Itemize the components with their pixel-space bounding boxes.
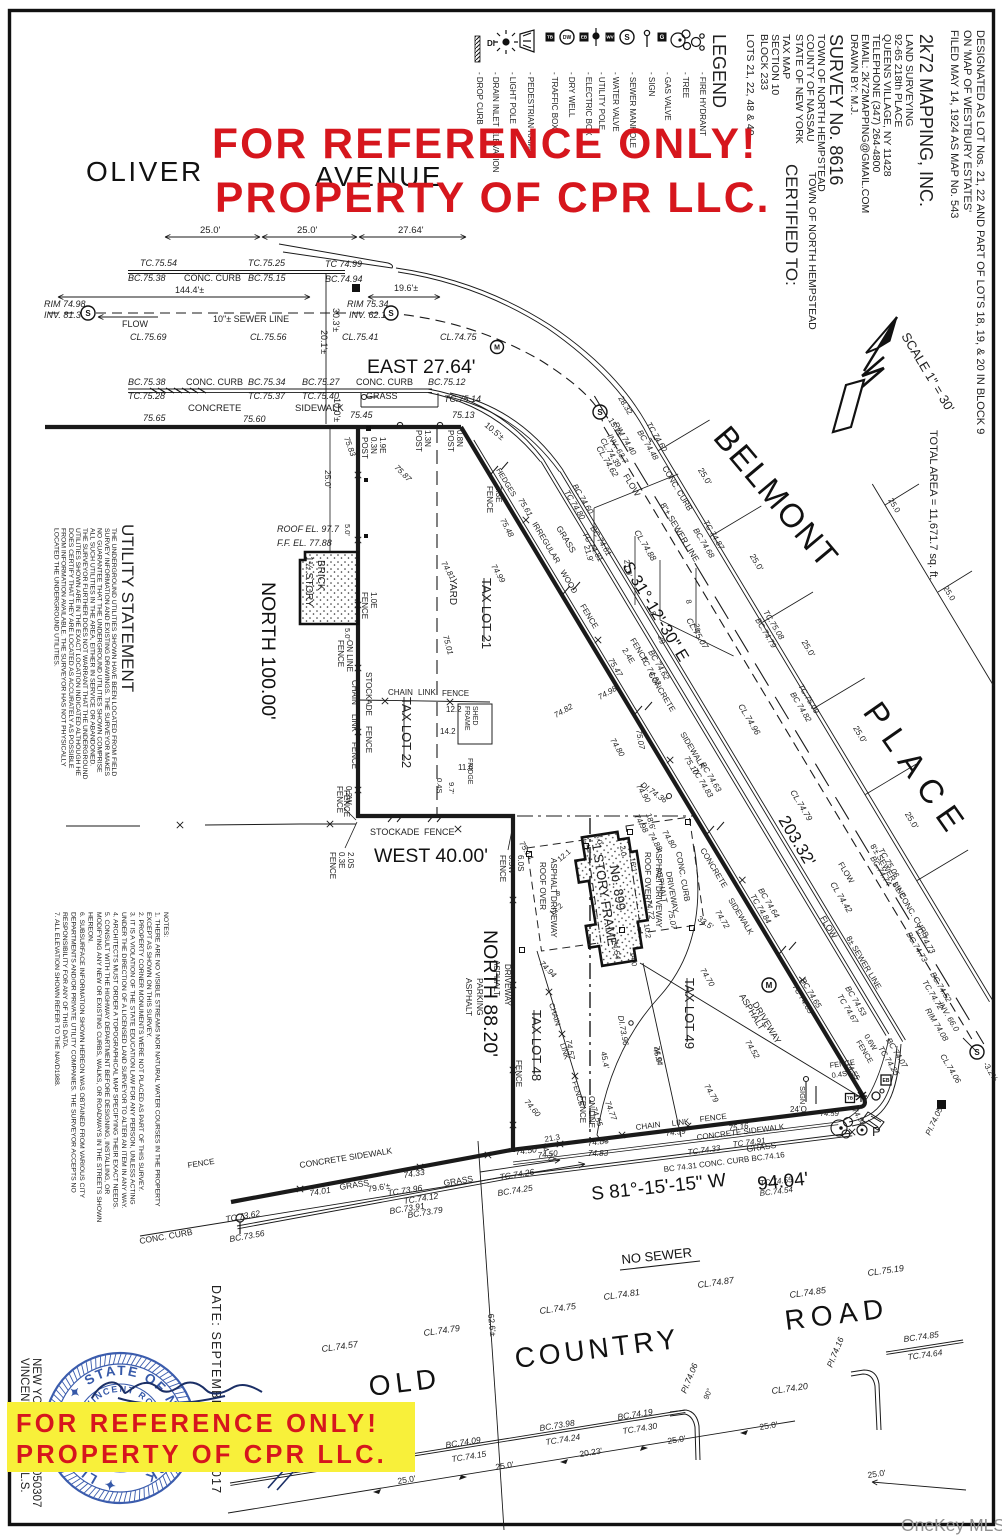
svg-text:UTILITY STATEMENT: UTILITY STATEMENT — [118, 524, 137, 692]
svg-text:LINK: LINK — [350, 714, 359, 732]
svg-text:TB: TB — [547, 35, 554, 40]
svg-text:F.F. EL. 77.88: F.F. EL. 77.88 — [277, 538, 332, 548]
svg-text:NO GUARANTEE THAT THE UNDERGR: NO GUARANTEE THAT THE UNDERGROUND UTILIT… — [96, 528, 103, 773]
svg-text:CONCRETE: CONCRETE — [188, 403, 241, 414]
svg-text:FRAME: FRAME — [463, 706, 470, 731]
svg-text:BC.75.38: BC.75.38 — [128, 273, 166, 283]
svg-text:75.13: 75.13 — [452, 410, 475, 420]
svg-text:4. ARCHITECTS MUST ORDER A TOP: 4. ARCHITECTS MUST ORDER A TOPOGRAPHICAL… — [112, 912, 119, 1209]
svg-text:PARKING: PARKING — [475, 978, 485, 1016]
svg-text:TOWN OF NORTH HEMPSTEAD: TOWN OF NORTH HEMPSTEAD — [806, 172, 818, 330]
svg-text:DRAWN BY: M.J.: DRAWN BY: M.J. — [848, 34, 860, 115]
svg-text:INV. 62.1: INV. 62.1 — [349, 310, 386, 320]
svg-text:27.64': 27.64' — [398, 225, 424, 236]
svg-text:BLOCK 233: BLOCK 233 — [758, 34, 770, 90]
svg-text:7. ALL ELEVATION SHOWN REFER T: 7. ALL ELEVATION SHOWN REFER TO THE NAVD… — [53, 912, 60, 1087]
svg-text:S: S — [624, 33, 630, 42]
svg-text:WV: WV — [606, 35, 613, 40]
svg-text:WEST 40.00': WEST 40.00' — [374, 845, 488, 867]
svg-text:2.3E: 2.3E — [494, 486, 503, 502]
svg-text:BC.75.15: BC.75.15 — [248, 273, 287, 283]
svg-text:ASPHALT DRIVEWAY: ASPHALT DRIVEWAY — [549, 858, 558, 938]
svg-text:G: G — [660, 35, 665, 41]
svg-text:75.65: 75.65 — [143, 413, 167, 423]
svg-text:1.3N: 1.3N — [423, 430, 432, 447]
svg-text:ON 'MAP OF WESTBURY ESTATES': ON 'MAP OF WESTBURY ESTATES' — [961, 30, 973, 212]
svg-text:DI: DI — [487, 39, 495, 48]
svg-text:STOCKADE: STOCKADE — [364, 672, 373, 716]
svg-text:SHED: SHED — [471, 706, 478, 725]
svg-text:0.5W: 0.5W — [507, 855, 516, 874]
svg-text:EAST 27.64': EAST 27.64' — [367, 356, 476, 378]
svg-text:THE SURVEYOR FURTHER DOES NOT: THE SURVEYOR FURTHER DOES NOT WARRANT TH… — [81, 528, 88, 779]
svg-text:6. SUBSURFACE INFORMATION SHOW: 6. SUBSURFACE INFORMATION SHOWN HEREON W… — [78, 912, 85, 1198]
svg-text:FENCE: FENCE — [578, 1096, 587, 1123]
svg-text:8.0: 8.0 — [594, 833, 604, 845]
svg-text:FENCE: FENCE — [514, 1060, 523, 1087]
svg-text:FENCE: FENCE — [364, 726, 373, 753]
svg-text:TC 74.99: TC 74.99 — [325, 259, 362, 269]
svg-text:UNDER THE DIRECTION OF A LICEN: UNDER THE DIRECTION OF A LICENSED LAND S… — [120, 912, 127, 1208]
svg-text:0.8N: 0.8N — [455, 430, 464, 447]
svg-text:FROM INFORMATION AVAILABLE. T: FROM INFORMATION AVAILABLE. THE SURVEYOR… — [60, 528, 67, 767]
svg-text:0.4S: 0.4S — [435, 778, 444, 793]
svg-text:LEGEND: LEGEND — [709, 34, 729, 108]
svg-text:BC.74.94: BC.74.94 — [325, 274, 363, 284]
svg-text:FENCE: FENCE — [336, 640, 345, 667]
svg-text:EXCEPT AS SHOWN ON THIS SURVEY: EXCEPT AS SHOWN ON THIS SURVEY. — [145, 912, 152, 1038]
svg-text:OneKey MLS: OneKey MLS — [901, 1515, 1002, 1535]
svg-text:THE UNDERGROUND UTILITIES SHOW: THE UNDERGROUND UTILITIES SHOWN HAVE BEE… — [110, 528, 117, 776]
svg-text:144.4'±: 144.4'± — [175, 285, 204, 295]
svg-text:M: M — [766, 981, 773, 990]
svg-text:SURVEY No. 8616: SURVEY No. 8616 — [826, 34, 846, 185]
svg-text:STOCKADE: STOCKADE — [370, 827, 419, 837]
svg-text:FENCE: FENCE — [498, 855, 507, 882]
svg-text:0.3E: 0.3E — [337, 852, 346, 868]
svg-text:0.3N: 0.3N — [369, 437, 378, 454]
svg-text:30.3'±: 30.3'± — [331, 308, 341, 332]
svg-text:25.0': 25.0' — [200, 225, 220, 236]
svg-text:FOR REFERENCE ONLY!: FOR REFERENCE ONLY! — [212, 121, 758, 168]
svg-text:- GAS VALVE: - GAS VALVE — [663, 72, 672, 121]
svg-text:SIGN: SIGN — [798, 1086, 807, 1104]
svg-text:FENCE: FENCE — [424, 827, 455, 837]
svg-text:ALL SUCH UTILITIES IN THE AREA: ALL SUCH UTILITIES IN THE AREA, EITHER I… — [88, 528, 95, 766]
svg-text:FENCE: FENCE — [342, 790, 351, 817]
svg-text:CHAIN: CHAIN — [350, 680, 359, 705]
svg-text:TC.75.37: TC.75.37 — [248, 391, 286, 401]
svg-text:5. CONSULT WITH THE HIGHWAY DE: 5. CONSULT WITH THE HIGHWAY DEPARTMENT B… — [103, 912, 110, 1194]
svg-text:TC.75.25: TC.75.25 — [248, 258, 286, 268]
svg-text:RIM 74.98: RIM 74.98 — [44, 299, 86, 309]
svg-text:- DRY WELL: - DRY WELL — [567, 72, 576, 118]
svg-text:YARD: YARD — [447, 578, 458, 605]
svg-text:DOES CERTIFY THAT THEY ARE LOC: DOES CERTIFY THAT THEY ARE LOCATED AS AC… — [67, 528, 74, 769]
svg-text:DW: DW — [563, 35, 572, 41]
svg-text:GRASS: GRASS — [366, 391, 398, 401]
svg-text:ASPHALT: ASPHALT — [492, 960, 501, 996]
svg-text:TB: TB — [847, 1096, 854, 1101]
svg-text:1½ STORY: 1½ STORY — [303, 556, 314, 607]
svg-text:CHAIN: CHAIN — [388, 688, 413, 697]
svg-text:M: M — [494, 345, 500, 352]
svg-text:TAX LOT 48: TAX LOT 48 — [529, 1010, 544, 1081]
svg-text:FILED MAY 14, 1924 AS MAP No.: FILED MAY 14, 1924 AS MAP No. 543 — [948, 30, 960, 218]
svg-text:ON LINE: ON LINE — [345, 640, 354, 672]
svg-text:FENCE: FENCE — [485, 486, 494, 513]
svg-text:BC.75.12: BC.75.12 — [428, 377, 466, 387]
svg-text:1.0E: 1.0E — [369, 592, 378, 608]
svg-text:20.1'±: 20.1'± — [319, 330, 329, 354]
svg-text:BC.75.34: BC.75.34 — [248, 377, 286, 387]
svg-text:12.2: 12.2 — [446, 705, 462, 714]
svg-text:TOTAL AREA = 11,671.7 sq. ft.: TOTAL AREA = 11,671.7 sq. ft. — [927, 430, 939, 580]
svg-text:SURVEY INFORMATION AND EXISTIN: SURVEY INFORMATION AND EXISTING DRAWINGS… — [103, 528, 110, 776]
svg-text:S: S — [85, 309, 91, 318]
svg-text:1.9E: 1.9E — [378, 437, 387, 453]
svg-text:FRIDGE: FRIDGE — [466, 758, 473, 785]
svg-text:EB: EB — [581, 35, 588, 40]
svg-text:CONC. CURB: CONC. CURB — [186, 377, 243, 387]
svg-text:TC.75.54: TC.75.54 — [140, 258, 177, 268]
svg-text:DESIGNATED AS LOT Nos. 21, 22: DESIGNATED AS LOT Nos. 21, 22 AND PART O… — [974, 30, 986, 434]
svg-text:14.2: 14.2 — [440, 727, 456, 736]
svg-text:BC.75.27: BC.75.27 — [302, 377, 341, 387]
svg-text:HEREON.: HEREON. — [86, 912, 93, 943]
svg-text:CL.74.75: CL.74.75 — [440, 332, 478, 342]
svg-text:CL.75.41: CL.75.41 — [342, 332, 379, 342]
svg-text:24ʼO: 24ʼO — [790, 1105, 807, 1114]
svg-text:6.0S: 6.0S — [516, 855, 525, 871]
svg-text:- TREE: - TREE — [681, 72, 690, 98]
svg-text:RESPONSIBILITY FOR ANY OF THIS: RESPONSIBILITY FOR ANY OF THIS DATA. — [61, 912, 68, 1049]
svg-text:5.0': 5.0' — [343, 628, 352, 640]
svg-text:DEPARTMENTS AND/OR PRIVATE UTI: DEPARTMENTS AND/OR PRIVATE UTILITY COMPA… — [70, 912, 77, 1193]
svg-text:9.7': 9.7' — [447, 782, 456, 794]
svg-text:POST: POST — [414, 430, 423, 452]
svg-text:74.59: 74.59 — [820, 1109, 840, 1118]
svg-text:NORTH 100.00': NORTH 100.00' — [257, 582, 279, 720]
svg-text:TAX LOT 49: TAX LOT 49 — [682, 978, 697, 1049]
svg-text:CL.75.56: CL.75.56 — [250, 332, 287, 342]
svg-text:2. PROPERTY CORNER MONUMENTS W: 2. PROPERTY CORNER MONUMENTS WERE NOT PL… — [137, 912, 144, 1191]
svg-text:ROOF EL. 97.7: ROOF EL. 97.7 — [277, 524, 340, 534]
svg-text:OLIVER: OLIVER — [86, 156, 204, 187]
svg-text:ROOF OVER: ROOF OVER — [538, 862, 547, 910]
svg-text:LINK: LINK — [418, 688, 436, 697]
svg-text:DRIVEWAY: DRIVEWAY — [503, 964, 512, 1006]
svg-text:10"± SEWER LINE: 10"± SEWER LINE — [213, 314, 289, 324]
svg-text:25.0': 25.0' — [323, 470, 333, 489]
svg-text:2.0: 2.0 — [618, 845, 628, 857]
svg-text:MODIFYING ANY NEW OR EXISTING: MODIFYING ANY NEW OR EXISTING CURBS, WAL… — [95, 912, 102, 1222]
svg-text:TC.75.28: TC.75.28 — [128, 391, 165, 401]
svg-text:FENCE: FENCE — [442, 689, 469, 698]
svg-text:NOTES:: NOTES: — [162, 912, 169, 937]
svg-text:PROPERTY OF CPR LLC.: PROPERTY OF CPR LLC. — [16, 1441, 387, 1469]
svg-text:CONC. CURB: CONC. CURB — [356, 377, 413, 387]
svg-text:25.0': 25.0' — [297, 225, 317, 236]
svg-text:3. IT IS A VIOLATION OF THE ST: 3. IT IS A VIOLATION OF THE STATE EDUCAT… — [128, 912, 135, 1205]
svg-text:10.0'±: 10.0'± — [332, 398, 342, 422]
svg-text:S: S — [388, 309, 394, 318]
svg-text:LOCATED THE UNDERGROUND UTILIT: LOCATED THE UNDERGROUND UTILITIES. — [52, 528, 59, 667]
svg-text:BRICK: BRICK — [315, 560, 326, 591]
svg-text:CERTIFIED TO:: CERTIFIED TO: — [782, 164, 801, 286]
svg-text:FLOW: FLOW — [122, 319, 149, 329]
svg-text:2k72 MAPPING, INC.: 2k72 MAPPING, INC. — [916, 34, 936, 207]
svg-text:75.60: 75.60 — [243, 414, 266, 424]
svg-text:S: S — [974, 1048, 980, 1057]
svg-text:2.0S: 2.0S — [346, 852, 355, 868]
svg-text:POST: POST — [446, 430, 455, 452]
svg-text:STATE OF NEW YORK: STATE OF NEW YORK — [793, 34, 805, 144]
svg-text:EB: EB — [883, 1078, 890, 1084]
svg-text:TAX LOT 22: TAX LOT 22 — [399, 697, 414, 768]
svg-text:TAX LOT 21: TAX LOT 21 — [479, 578, 494, 649]
svg-text:5.0': 5.0' — [343, 524, 352, 536]
svg-text:19.6'±: 19.6'± — [394, 283, 418, 293]
svg-text:FOR REFERENCE ONLY!: FOR REFERENCE ONLY! — [16, 1410, 379, 1438]
svg-text:ASPHALT: ASPHALT — [464, 978, 474, 1016]
svg-text:ROOF OVER: ROOF OVER — [643, 852, 652, 900]
svg-text:INV. 81.3: INV. 81.3 — [44, 310, 81, 320]
svg-text:POST: POST — [360, 437, 369, 459]
svg-text:BC.75.38: BC.75.38 — [128, 377, 166, 387]
svg-text:- DROP CURB: - DROP CURB — [475, 72, 484, 125]
svg-text:CONC. CURB: CONC. CURB — [184, 273, 241, 283]
svg-text:FENCE: FENCE — [328, 852, 337, 879]
svg-text:- SIGN: - SIGN — [647, 72, 656, 97]
svg-text:PROPERTY OF CPR LLC.: PROPERTY OF CPR LLC. — [215, 175, 771, 222]
svg-text:UTILITIES SHOWN ARE IN THE EXA: UTILITIES SHOWN ARE IN THE EXACT LOCATIO… — [74, 528, 81, 776]
svg-text:FENCE: FENCE — [360, 592, 369, 619]
svg-text:- LIGHT POLE: - LIGHT POLE — [508, 72, 517, 124]
svg-text:1. THERE ARE NO VISIBLE STREAM: 1. THERE ARE NO VISIBLE STREAMS NOR NATU… — [154, 912, 161, 1207]
svg-text:75.45: 75.45 — [350, 410, 374, 420]
svg-text:CL.75.69: CL.75.69 — [130, 332, 167, 342]
svg-text:RIM 75.34: RIM 75.34 — [347, 299, 389, 309]
svg-text:FENCE: FENCE — [350, 742, 359, 769]
